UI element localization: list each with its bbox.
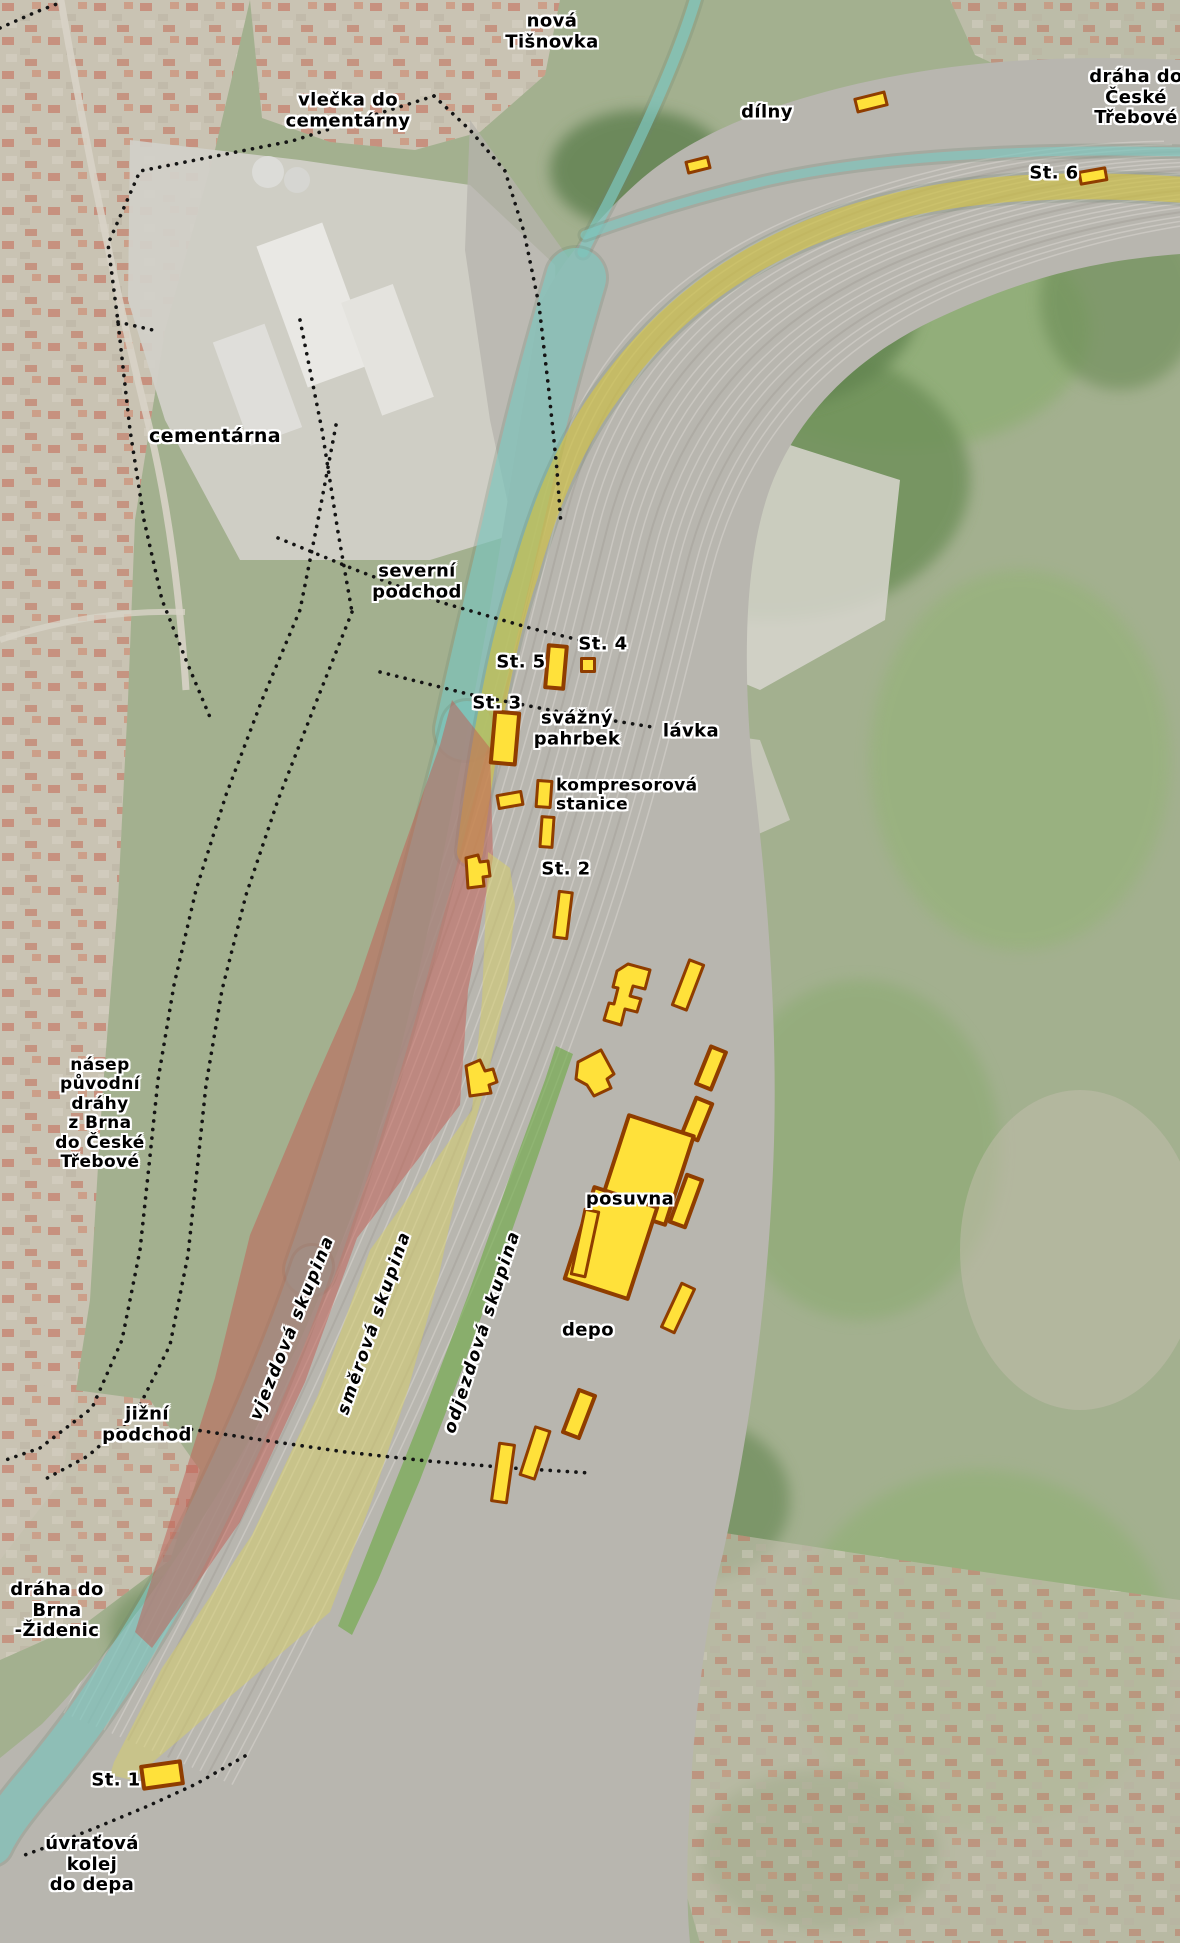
label-dilny: dílny bbox=[741, 103, 793, 124]
label-uvratova-kolej-do-depa-line: kolej bbox=[45, 1855, 139, 1876]
label-st-3: St. 3 bbox=[472, 694, 521, 715]
label-depo: depo bbox=[562, 1321, 614, 1342]
label-jizni-podchod: jižnípodchod bbox=[102, 1404, 192, 1445]
label-vlecka-do-cementarny-line: vlečka do bbox=[286, 90, 411, 111]
label-draha-do-brna-zidenic-line: dráha do bbox=[10, 1580, 104, 1601]
label-uvratova-kolej-do-depa-line: do depa bbox=[45, 1875, 139, 1896]
label-lavka-line: lávka bbox=[663, 722, 719, 743]
label-nasep-line: původní bbox=[55, 1075, 144, 1094]
label-draha-do-ceske-trebove-line: dráha do bbox=[1089, 67, 1180, 88]
label-st-4: St. 4 bbox=[578, 635, 627, 656]
label-nasep-line: z Brna bbox=[55, 1114, 144, 1133]
label-vjezdova-skupina: vjezdová skupina bbox=[247, 1233, 339, 1424]
label-nova-tisnovka-line: nová bbox=[505, 11, 598, 32]
label-st-5: St. 5 bbox=[496, 653, 545, 674]
label-draha-do-ceske-trebove-line: České bbox=[1089, 88, 1180, 109]
label-severni-podchod-line: podchod bbox=[372, 582, 462, 603]
label-svazny-pahrbek-line: svážný bbox=[534, 708, 621, 729]
label-uvratova-kolej-do-depa: úvraťovákolejdo depa bbox=[45, 1834, 139, 1896]
label-st-5-line: St. 5 bbox=[496, 653, 545, 674]
label-st-1-line: St. 1 bbox=[91, 1771, 140, 1792]
label-jizni-podchod-line: jižní bbox=[102, 1404, 192, 1425]
label-draha-do-brna-zidenic-line: -Židenic bbox=[10, 1621, 104, 1642]
label-odjezdova-skupina-line: odjezdová skupina bbox=[441, 1228, 525, 1436]
label-kompresorova-stanice: kompresorovástanice bbox=[556, 777, 698, 816]
label-uvratova-kolej-do-depa-line: úvraťová bbox=[45, 1834, 139, 1855]
label-draha-do-ceske-trebove-line: Třebové bbox=[1089, 108, 1180, 129]
label-st-3-line: St. 3 bbox=[472, 694, 521, 715]
label-draha-do-brna-zidenic-line: Brna bbox=[10, 1601, 104, 1622]
label-cementarna: cementárna bbox=[149, 426, 281, 448]
label-st-1: St. 1 bbox=[91, 1771, 140, 1792]
label-posuvna: posuvna bbox=[586, 1190, 674, 1211]
label-nova-tisnovka: nováTišnovka bbox=[505, 11, 598, 52]
label-smerova-skupina-line: směrová skupina bbox=[334, 1229, 415, 1418]
label-nasep-line: Třebové bbox=[55, 1153, 144, 1172]
map-viewport: nováTišnovkavlečka docementárnydílnydráh… bbox=[0, 0, 1180, 1943]
label-depo-line: depo bbox=[562, 1321, 614, 1342]
label-kompresorova-stanice-line: stanice bbox=[556, 796, 698, 815]
label-nasep-line: dráhy bbox=[55, 1095, 144, 1114]
map-labels: nováTišnovkavlečka docementárnydílnydráh… bbox=[0, 0, 1180, 1943]
label-severni-podchod-line: severní bbox=[372, 561, 462, 582]
label-dilny-line: dílny bbox=[741, 103, 793, 124]
label-severni-podchod: severnípodchod bbox=[372, 561, 462, 602]
label-st-2-line: St. 2 bbox=[541, 860, 590, 881]
label-jizni-podchod-line: podchod bbox=[102, 1425, 192, 1446]
label-st-6: St. 6 bbox=[1029, 164, 1078, 185]
label-nasep: náseppůvodnídráhyz Brnado ČeskéTřebové bbox=[55, 1056, 144, 1172]
label-vlecka-do-cementarny-line: cementárny bbox=[286, 111, 411, 132]
label-nova-tisnovka-line: Tišnovka bbox=[505, 32, 598, 53]
label-kompresorova-stanice-line: kompresorová bbox=[556, 777, 698, 796]
label-st-4-line: St. 4 bbox=[578, 635, 627, 656]
label-draha-do-brna-zidenic: dráha doBrna-Židenic bbox=[10, 1580, 104, 1642]
label-draha-do-ceske-trebove: dráha doČeskéTřebové bbox=[1089, 67, 1180, 129]
label-st-2: St. 2 bbox=[541, 860, 590, 881]
label-vjezdova-skupina-line: vjezdová skupina bbox=[247, 1233, 339, 1424]
label-svazny-pahrbek: svážnýpahrbek bbox=[534, 708, 621, 749]
label-nasep-line: násep bbox=[55, 1056, 144, 1075]
label-cementarna-line: cementárna bbox=[149, 426, 281, 448]
label-svazny-pahrbek-line: pahrbek bbox=[534, 729, 621, 750]
label-posuvna-line: posuvna bbox=[586, 1190, 674, 1211]
label-st-6-line: St. 6 bbox=[1029, 164, 1078, 185]
label-smerova-skupina: směrová skupina bbox=[334, 1229, 415, 1418]
label-vlecka-do-cementarny: vlečka docementárny bbox=[286, 90, 411, 131]
label-odjezdova-skupina: odjezdová skupina bbox=[441, 1228, 525, 1436]
label-nasep-line: do České bbox=[55, 1133, 144, 1152]
label-lavka: lávka bbox=[663, 722, 719, 743]
